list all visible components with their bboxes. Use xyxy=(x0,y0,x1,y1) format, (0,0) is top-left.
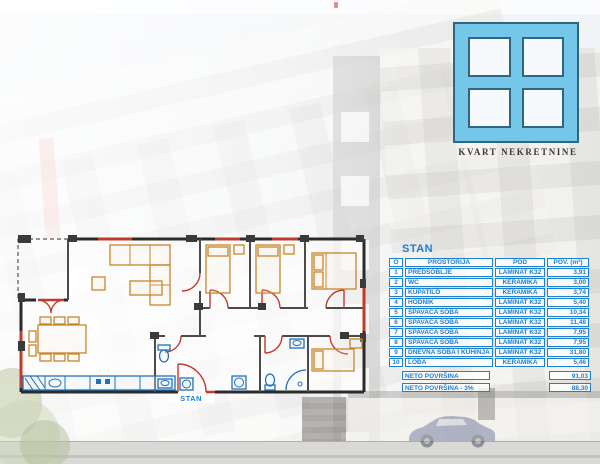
cell-room: SPAVAĆA SOBA xyxy=(405,308,493,317)
cell-area: 3,91 xyxy=(547,268,589,277)
table-row: 8SPAVAĆA SOBALAMINAT K327,95 xyxy=(389,338,589,347)
table-row: 4HODNIKLAMINAT K325,40 xyxy=(389,298,589,307)
summary-label: NETO POVRŠINA - 3% xyxy=(402,383,490,392)
table-title: STAN xyxy=(402,244,593,255)
cell-room: KUPATILO xyxy=(405,288,493,297)
cell-area: 10,34 xyxy=(547,308,589,317)
cell-floor: LAMINAT K32 xyxy=(495,298,545,307)
cell-num: 3 xyxy=(389,288,403,297)
table-row: 7SPAVAĆA SOBALAMINAT K327,95 xyxy=(389,328,589,337)
cell-area: 31,80 xyxy=(547,348,589,357)
table-row: 10LOĐAKERAMIKA5,46 xyxy=(389,358,589,367)
logo-pane xyxy=(468,37,511,77)
cell-area: 11,48 xyxy=(547,318,589,327)
table-row: 2WCKERAMIKA3,00 xyxy=(389,278,589,287)
cell-num: 2 xyxy=(389,278,403,287)
col-header-floor: POD xyxy=(495,258,545,267)
cell-floor: KERAMIKA xyxy=(495,278,545,287)
ground-rail xyxy=(348,391,600,398)
cell-room: SPAVAĆA SOBA xyxy=(405,338,493,347)
cell-floor: LAMINAT K32 xyxy=(495,318,545,327)
street xyxy=(0,441,600,464)
cell-area: 7,95 xyxy=(547,338,589,347)
cell-area: 7,95 xyxy=(547,328,589,337)
logo-window-icon xyxy=(453,22,579,143)
floor-plan-label: STAN xyxy=(168,394,214,403)
agency-logo: KVART NEKRETNINE xyxy=(453,22,583,157)
table-row: 5SPAVAĆA SOBALAMINAT K3210,34 xyxy=(389,308,589,317)
logo-pane xyxy=(468,88,511,128)
street-curb xyxy=(0,455,600,458)
flyer-canvas: KVART NEKRETNINE xyxy=(0,0,600,464)
cell-room: PREDSOBLJE xyxy=(405,268,493,277)
logo-brand-name: KVART NEKRETNINE xyxy=(453,147,583,157)
cell-num: 6 xyxy=(389,318,403,327)
table-row: 6SPAVAĆA SOBALAMINAT K3211,48 xyxy=(389,318,589,327)
fence-pillar xyxy=(302,397,346,444)
floor-plan xyxy=(10,233,372,397)
table-header-row: O PROSTORIJA POD POV. (m²) xyxy=(389,258,589,267)
cell-floor: LAMINAT K32 xyxy=(495,308,545,317)
rooms-table: O PROSTORIJA POD POV. (m²) 1PREDSOBLJELA… xyxy=(387,257,591,368)
cell-room: HODNIK xyxy=(405,298,493,307)
cell-floor: KERAMIKA xyxy=(495,358,545,367)
cell-num: 7 xyxy=(389,328,403,337)
cell-num: 1 xyxy=(389,268,403,277)
cell-floor: LAMINAT K32 xyxy=(495,268,545,277)
table-row: 9DNEVNA SOBA I KUHINJALAMINAT K3231,80 xyxy=(389,348,589,357)
cell-area: 3,74 xyxy=(547,288,589,297)
col-header-room: PROSTORIJA xyxy=(405,258,493,267)
cell-area: 5,46 xyxy=(547,358,589,367)
summary-row-net-area: NETO POVRŠINA 91,03 xyxy=(387,371,593,380)
summary-row-net-area-minus: NETO POVRŠINA - 3% 88,30 xyxy=(387,383,593,392)
cell-room: SPAVAĆA SOBA xyxy=(405,328,493,337)
cell-num: 9 xyxy=(389,348,403,357)
cell-num: 4 xyxy=(389,298,403,307)
cell-room: LOĐA xyxy=(405,358,493,367)
cell-area: 5,40 xyxy=(547,298,589,307)
parked-car xyxy=(403,411,499,451)
cell-area: 3,00 xyxy=(547,278,589,287)
cell-room: WC xyxy=(405,278,493,287)
cell-floor: LAMINAT K32 xyxy=(495,338,545,347)
bush xyxy=(20,420,70,464)
logo-pane xyxy=(522,88,565,128)
col-header-num: O xyxy=(389,258,403,267)
summary-label: NETO POVRŠINA xyxy=(402,371,490,380)
col-header-area: POV. (m²) xyxy=(547,258,589,267)
logo-pane xyxy=(522,37,565,77)
cell-room: DNEVNA SOBA I KUHINJA xyxy=(405,348,493,357)
table-row: 1PREDSOBLJELAMINAT K323,91 xyxy=(389,268,589,277)
summary-value: 91,03 xyxy=(549,371,591,380)
cell-floor: LAMINAT K32 xyxy=(495,348,545,357)
summary-value: 88,30 xyxy=(549,383,591,392)
cell-room: SPAVAĆA SOBA xyxy=(405,318,493,327)
cell-floor: KERAMIKA xyxy=(495,288,545,297)
table-row: 3KUPATILOKERAMIKA3,74 xyxy=(389,288,589,297)
apartment-table-panel: STAN O PROSTORIJA POD POV. (m²) 1PREDSOB… xyxy=(387,244,593,392)
cell-num: 8 xyxy=(389,338,403,347)
cell-num: 5 xyxy=(389,308,403,317)
cell-floor: LAMINAT K32 xyxy=(495,328,545,337)
cell-num: 10 xyxy=(389,358,403,367)
